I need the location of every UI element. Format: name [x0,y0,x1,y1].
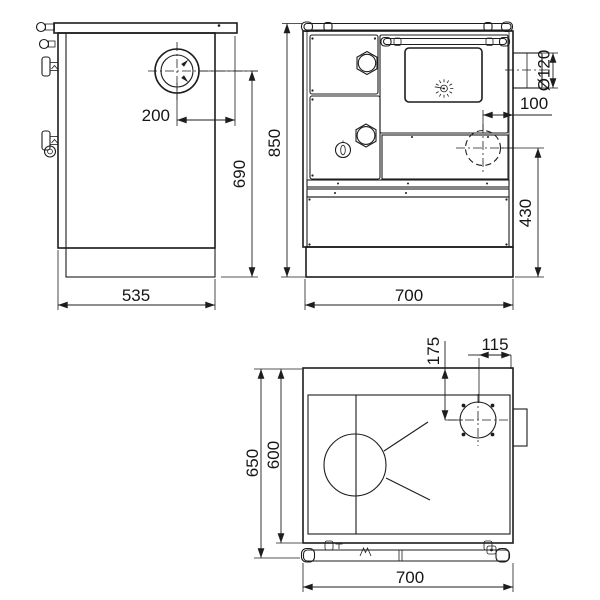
oven-handle-rail [384,39,507,45]
side-cooktop-bolt [218,24,221,27]
dim-label-600: 600 [264,441,283,469]
hex-handle-nut [356,124,376,147]
top-view: 175 115 650 600 700 [243,335,527,592]
hinge-pin [374,37,376,39]
dim-label-535: 535 [122,286,150,305]
latch-mark-m [360,548,371,556]
band-pin [405,192,407,194]
dim-label-175: 175 [424,337,443,365]
technical-drawing-canvas: 200 690 535 [0,0,600,600]
rail-end-stem [49,41,56,47]
dim-label-690: 690 [230,160,249,188]
side-rail-end-knobs [37,23,56,49]
dim-label-200: 200 [142,106,170,125]
upper-left-door [310,35,378,94]
dim-overall-height-850: 850 [265,24,305,278]
oven-thermometer-icon [435,79,454,98]
plate-split-line [384,422,428,451]
front-base [306,247,513,277]
latch-clip-pin [490,549,493,552]
side-cooktop-slab [54,23,237,33]
dim-side-flue-offset: 200 [142,36,235,126]
oven-door [380,35,510,133]
dim-front-width-700: 700 [305,279,513,310]
hex-handle-nut [357,52,377,75]
side-view: 200 690 535 [37,23,259,311]
lower-left-door [310,96,380,179]
dim-side-flue-offset-100: 100 [483,94,552,130]
handle-bar [42,57,50,76]
knob-circle [336,143,351,158]
rail-end-cap [40,40,49,49]
dim-body-depth-600: 600 [264,369,302,543]
lower-right-panel [382,135,508,179]
panel-pin [411,136,413,138]
oven-door-panel [380,35,508,133]
dim-side-depth: 535 [58,250,215,310]
band-pin [407,183,409,185]
band-pin [334,192,336,194]
dim-label-115: 115 [481,335,508,354]
hotplate-ring [324,434,386,496]
dim-label-700-front: 700 [395,286,423,305]
band-pin [337,183,339,185]
front-view: Ø120 100 430 850 700 [265,22,558,310]
dim-side-flue-height-430: 430 [500,148,544,277]
band-pin [486,183,488,185]
hex-handle-ring [358,54,375,71]
hinge-pin [311,89,313,91]
thermometer-needle [435,87,444,89]
dim-label-100: 100 [520,94,548,113]
dim-label-650: 650 [243,449,262,477]
plate-split-line [386,478,430,500]
rail-end-cap [37,23,46,32]
corner-pin [505,243,507,245]
corner-pin [308,198,310,200]
top-body-outline [303,368,513,543]
panel [382,135,508,179]
dim-flue-from-right-115: 115 [468,335,511,403]
hinge-pin [311,37,313,39]
collar-bolt [491,404,495,408]
dim-label-700-top: 700 [396,568,424,587]
collar-bolt [491,433,495,437]
dim-top-width-700: 700 [303,563,513,592]
hinge-pin [311,98,313,100]
latch-roller-hub [48,149,53,154]
dim-label-diameter-120: Ø120 [535,50,554,92]
cooktop-plate [308,395,510,534]
side-door-handle-upper [42,57,58,76]
dim-side-flue-height: 690 [199,71,258,277]
flue-bore-arrow [181,60,188,67]
plinth-panel [307,197,509,247]
dim-label-850: 850 [265,129,284,157]
flue-bore-arrow [181,75,188,82]
top-front-rail [302,541,510,562]
dim-label-430: 430 [516,199,535,227]
handle-latch-mark [52,140,58,144]
rail-tube [304,550,510,561]
air-control-knob [336,141,351,158]
collar-bolt [462,433,466,437]
collar-bolt [462,404,466,408]
front-towel-rail [304,24,511,31]
oven-window [405,48,482,102]
door-panel [310,35,378,94]
knob-slot [341,145,346,155]
panel [307,197,509,247]
rail-end-stem [46,24,55,30]
hex-handle-ring [357,127,375,145]
latch-mark-t [336,544,343,549]
corner-pin [308,243,310,245]
panel-pin [487,136,489,138]
dim-flue-diameter: Ø120 [535,50,559,92]
stove-technical-drawing: 200 690 535 [0,0,600,600]
side-stub-top-view [513,409,527,446]
dim-flue-from-back-175: 175 [424,337,463,420]
side-plinth [66,248,215,277]
side-door-handle-lower [42,131,58,157]
handle-latch-mark [52,66,58,70]
corner-pin [505,198,507,200]
door-panel [310,96,380,179]
trim-band-lower [307,189,509,197]
hinge-pin [311,174,313,176]
